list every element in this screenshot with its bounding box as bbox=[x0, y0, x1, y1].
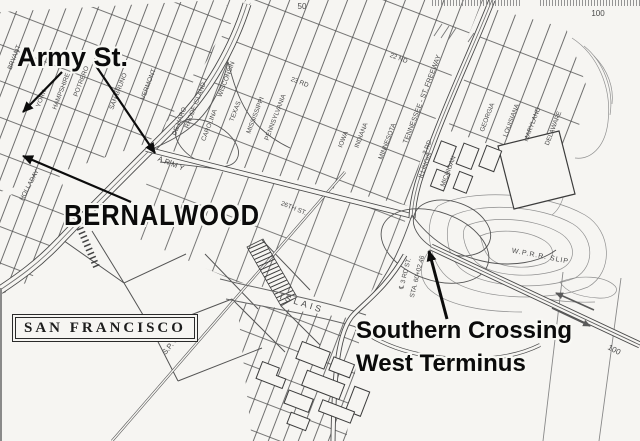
street-label: 100 bbox=[591, 9, 605, 18]
southern-crossing-annotation: Southern Crossing West Terminus bbox=[356, 314, 572, 380]
army-st-annotation: Army St. bbox=[17, 42, 128, 73]
bernalwood-logo: BERNALWOOD bbox=[64, 200, 260, 233]
southern-crossing-line1: Southern Crossing bbox=[356, 314, 572, 347]
street-label: 50 bbox=[298, 2, 307, 11]
scan-edge bbox=[0, 288, 2, 441]
san-francisco-map-label: SAN FRANCISCO bbox=[15, 317, 195, 339]
map-screenshot: BRYANTYORKHAMPSHIREPOTREROSAN BRUNOVERMO… bbox=[0, 0, 640, 441]
southern-crossing-line2: West Terminus bbox=[356, 347, 572, 380]
